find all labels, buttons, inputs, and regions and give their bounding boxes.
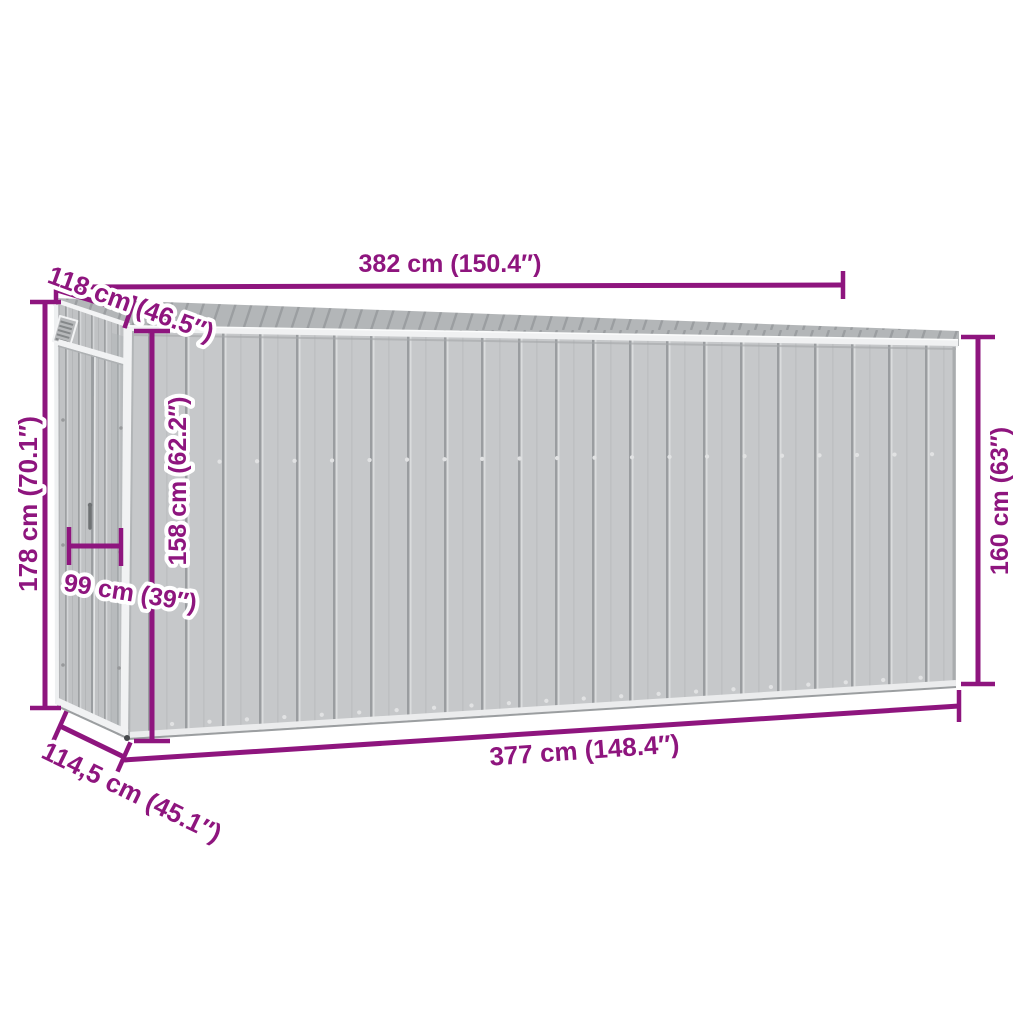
dimension-label-floor-depth: 114,5 cm (45.1″) bbox=[37, 735, 226, 848]
corner-post-trim bbox=[125, 328, 128, 738]
dimension-label-roof-length: 382 cm (150.4″) bbox=[359, 250, 542, 278]
dimension-rear-height: 178 cm (70.1″) bbox=[13, 302, 61, 708]
shed-side-wall bbox=[127, 332, 956, 739]
dimension-line bbox=[57, 285, 843, 287]
door-handle bbox=[88, 503, 92, 528]
dimension-front-height: 160 cm (63″) bbox=[961, 337, 1014, 684]
dimension-label-front-height: 160 cm (63″) bbox=[986, 427, 1014, 575]
shed-dimension-diagram: 382 cm (150.4″) 118 cm (46.5″) 178 cm (7… bbox=[0, 0, 1024, 1024]
dimension-label-eave-height: 158 cm (62.2″) bbox=[164, 396, 192, 565]
dimension-label-rear-height: 178 cm (70.1″) bbox=[13, 416, 43, 592]
front-left-trim bbox=[56, 305, 57, 704]
product-dimension-image: 382 cm (150.4″) 118 cm (46.5″) 178 cm (7… bbox=[0, 0, 1024, 1024]
door-seam-light bbox=[94, 357, 95, 719]
door-seam-dark bbox=[92, 357, 93, 720]
corner-foot bbox=[124, 735, 130, 741]
dimension-roof-length: 382 cm (150.4″) bbox=[56, 250, 843, 302]
